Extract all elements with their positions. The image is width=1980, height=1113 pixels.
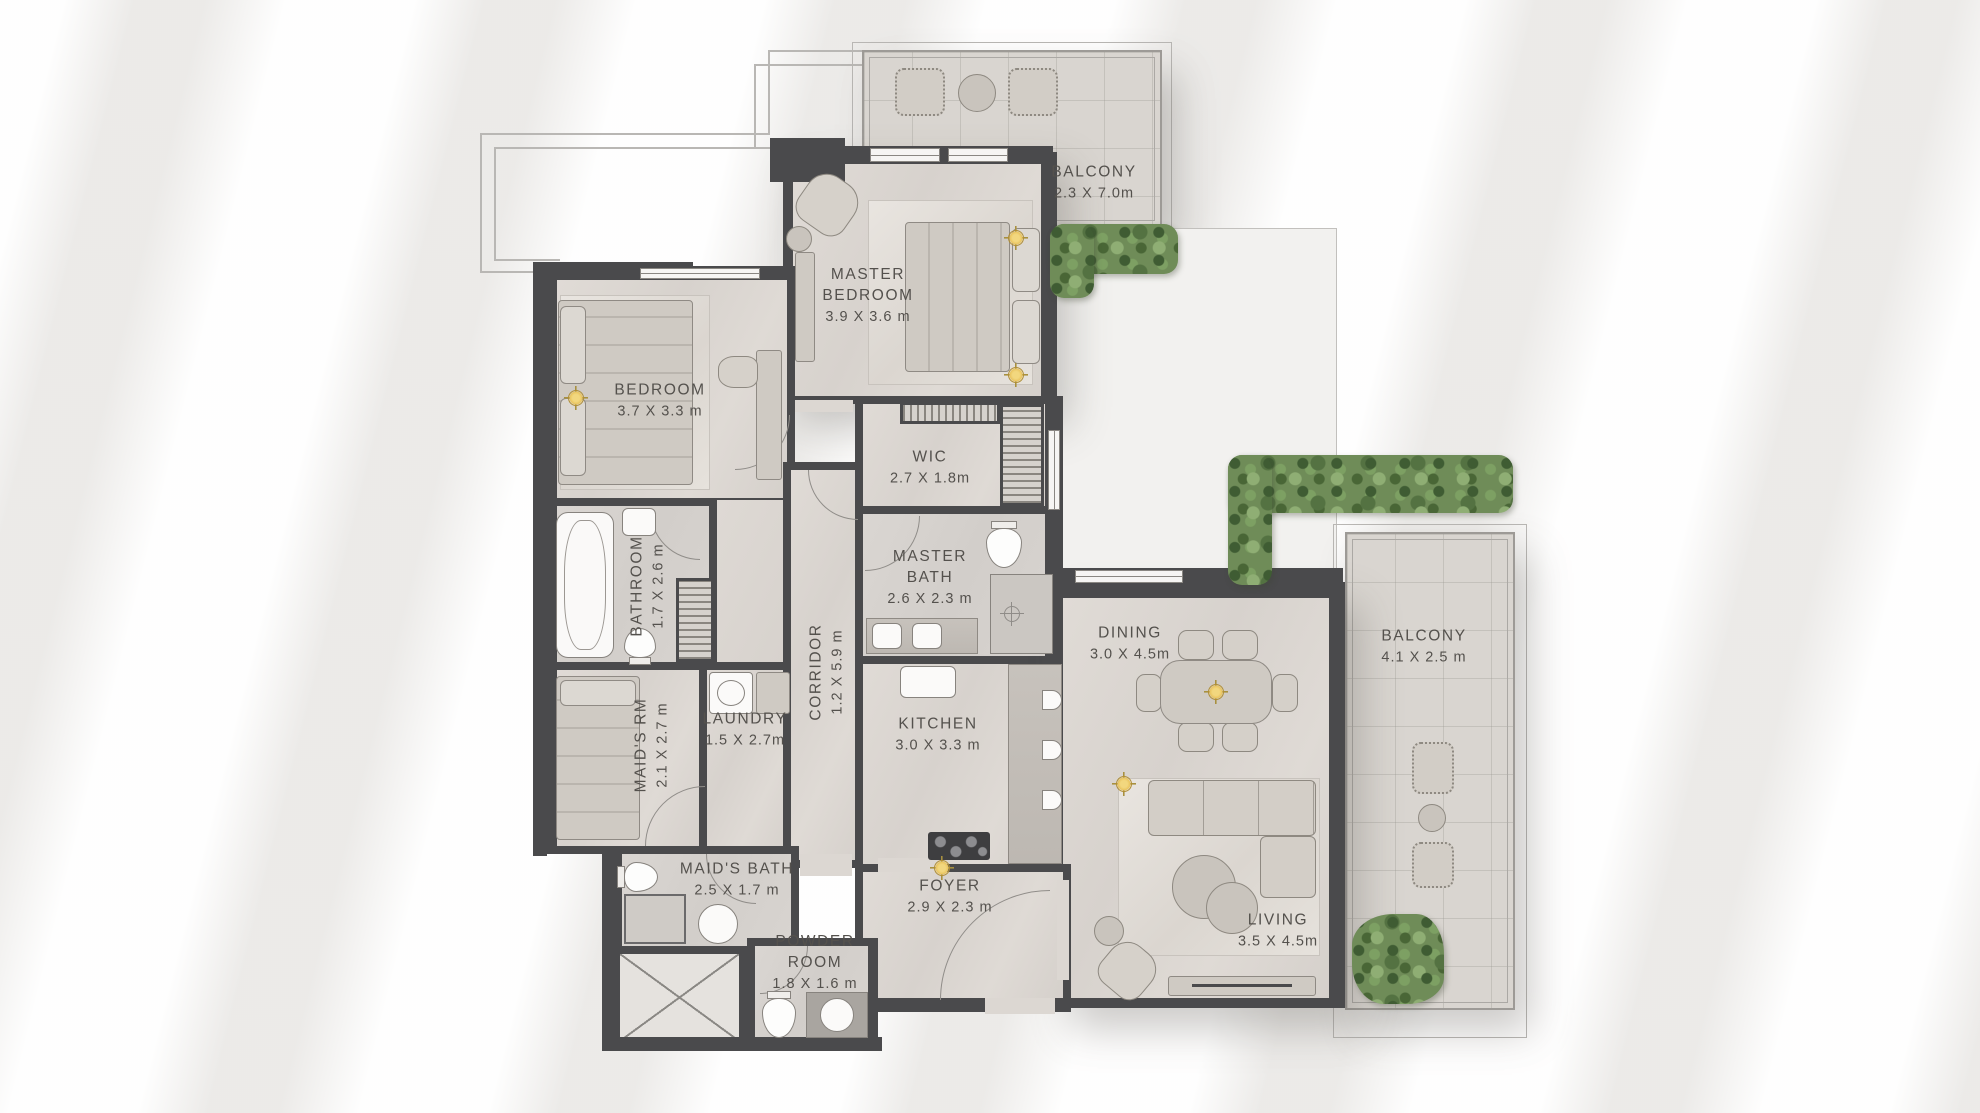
bathroom-label: BATHROOM 1.7 X 2.6 m [627,535,668,636]
terrace-outline [480,133,482,273]
balcony-armchair [1412,742,1454,794]
service-shaft [612,946,747,1049]
door-opening [985,998,1055,1014]
shower-drain-icon [1000,602,1024,626]
window [1075,570,1183,583]
light-target-icon [1004,226,1028,250]
balcony-armchair [895,68,945,116]
wall [602,1037,882,1051]
light-target-icon [1204,680,1228,704]
foyer-label: FOYER 2.9 X 2.3 m [907,876,992,917]
kitchen-label: KITCHEN 3.0 X 3.3 m [895,714,980,755]
dining-chair [1222,722,1258,752]
wardrobe [900,402,1000,424]
floor-plan-canvas: BALCONY 2.3 X 7.0m MASTER BEDROOM 3.9 X … [0,0,1980,1113]
bedroom-desk [756,350,782,480]
hedge-plant [1228,455,1272,585]
window [1048,430,1060,510]
powder-room-label: POWDER ROOM 1.8 X 1.6 m [772,932,858,994]
bedroom-label: BEDROOM 3.7 X 3.3 m [614,380,705,421]
window [870,148,940,162]
pillow [560,680,636,706]
laundry-shelf [756,672,790,714]
sink-icon [872,623,902,649]
dining-chair [1136,674,1162,712]
potted-plant [1352,914,1444,1004]
wall [602,846,614,1046]
terrace-outline [494,147,770,149]
tv-icon [1192,984,1292,987]
dining-chair [1272,674,1298,712]
light-target-icon [564,386,588,410]
balcony-armchair [1412,842,1454,888]
desk-chair [718,356,758,388]
light-target-icon [1112,772,1136,796]
terrace-outline [768,50,770,135]
dining-chair [1178,722,1214,752]
side-table [1094,916,1124,946]
round-sink-icon [820,998,854,1032]
living-label: LIVING 3.5 X 4.5m [1238,910,1318,951]
hedge-plant [1050,224,1094,298]
shower-tray [624,894,686,944]
maids-bath-label: MAID'S BATH 2.5 X 1.7 m [680,859,794,900]
balcony-armchair [1008,68,1058,116]
wall [1329,582,1345,882]
counter-bowl-icon [1042,790,1062,810]
linen-closet [676,578,714,662]
washing-machine-icon [709,672,753,714]
dining-label: DINING 3.0 X 4.5m [1090,623,1170,664]
sofa-sectional [1148,780,1316,836]
pedestal-sink-icon [698,904,738,944]
sink-icon [912,623,942,649]
pillow [560,306,586,384]
window [948,148,1008,162]
corridor-label: CORRIDOR 1.2 X 5.9 m [806,623,847,720]
kitchen-sink-icon [900,666,956,698]
dining-chair [1222,630,1258,660]
master-bedroom-label: MASTER BEDROOM 3.9 X 3.6 m [803,265,933,327]
terrace-outline [480,133,770,135]
sofa-chaise [1260,836,1316,898]
wic-label: WIC 2.7 X 1.8m [890,447,970,488]
terrace-outline [754,64,864,66]
door-opening [878,858,938,872]
terrace-outline [754,64,756,149]
balcony-right-label: BALCONY 4.1 X 2.5 m [1381,626,1466,667]
light-target-icon [1004,363,1028,387]
bathtub-icon [556,512,614,658]
sink-icon [622,508,656,536]
counter-bowl-icon [1042,740,1062,760]
pillow [1012,300,1040,364]
balcony-table [958,74,996,112]
wall [533,262,547,856]
window [640,268,760,279]
terrace-outline [768,50,864,52]
counter-bowl-icon [1042,690,1062,710]
side-table [786,226,812,252]
terrace-outline [494,259,560,261]
laundry-label: LAUNDRY 1.5 X 2.7m [702,709,788,750]
door-opening [800,854,852,876]
master-bath-label: MASTER BATH 2.6 X 2.3 m [885,547,975,609]
balcony-top-label: BALCONY 2.3 X 7.0m [1051,162,1136,203]
wardrobe [1000,404,1044,506]
dining-chair [1178,630,1214,660]
maids-rm-label: MAID'S RM 2.1 X 2.7 m [631,698,672,793]
balcony-table [1418,804,1446,832]
terrace-outline [494,147,496,259]
door-opening [1057,880,1069,980]
door-opening [795,400,853,412]
